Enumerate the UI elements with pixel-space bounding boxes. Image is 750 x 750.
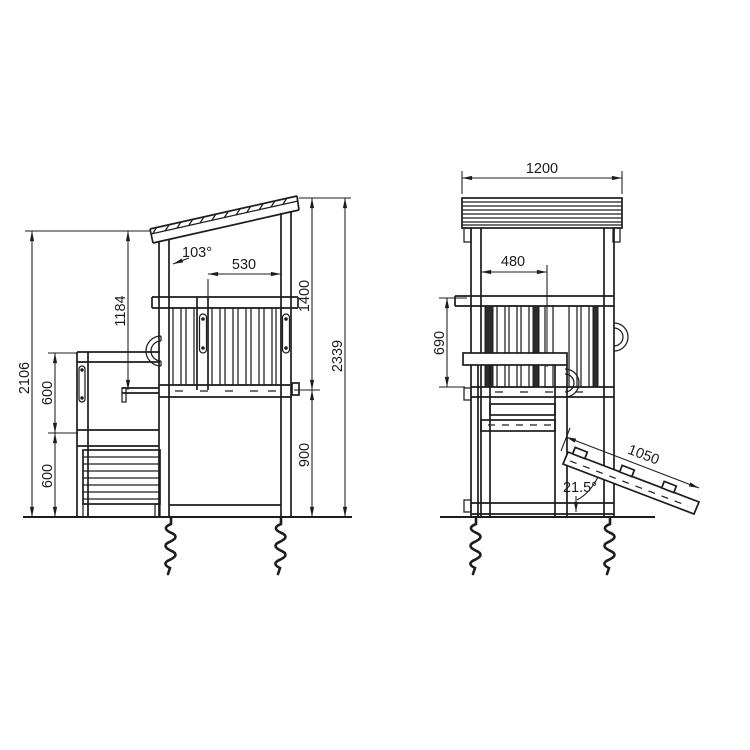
ladder-rung (490, 404, 555, 415)
ladder-top-rail (463, 353, 567, 365)
grab-handle-right (283, 314, 290, 353)
side-deck (122, 383, 299, 505)
dim-label-ramp-length: 1050 (626, 442, 662, 469)
ground-anchor (165, 517, 175, 574)
annex-grab-handle (79, 366, 85, 402)
dim-label-roof-to-deck-right: 1400 (297, 280, 313, 312)
dim-label-annex-upper: 600 (40, 381, 56, 405)
side-dimensions: 2106 600 600 1184 103° 530 1400 900 2339 (17, 198, 351, 517)
dim-label-roof-width: 1200 (526, 161, 558, 177)
dim-label-overall-height: 2339 (330, 340, 346, 372)
front-bottom-rail (471, 503, 614, 514)
side-railing-slats (173, 308, 281, 385)
steering-wheel-front (614, 323, 628, 351)
dim-label-deck-height: 900 (297, 443, 313, 467)
dim-label-ramp-angle: 21.5° (563, 480, 597, 496)
technical-drawing-page: 2106 600 600 1184 103° 530 1400 900 2339 (0, 0, 750, 750)
side-view: 2106 600 600 1184 103° 530 1400 900 2339 (17, 196, 352, 574)
front-view: 1200 480 690 1050 21.5° (432, 161, 699, 574)
front-top-rail (455, 296, 614, 306)
dim-label-railing-height: 690 (432, 331, 448, 355)
front-roof (462, 198, 622, 242)
playtower-dimension-drawing: 2106 600 600 1184 103° 530 1400 900 2339 (0, 0, 750, 750)
ground-anchor (275, 517, 285, 574)
front-ladder (463, 353, 567, 517)
dim-label-annex-lower: 600 (40, 464, 56, 488)
dim-label-entry-offset: 480 (501, 254, 525, 270)
roof-bracket-left (464, 228, 471, 242)
side-roof (150, 196, 299, 243)
side-railing (152, 297, 298, 390)
front-railing-slats (485, 306, 598, 387)
side-annex (77, 352, 160, 517)
ground-anchor (604, 517, 614, 574)
dim-label-roof-to-deck: 1184 (113, 295, 129, 326)
annex-slat-panel (83, 450, 160, 504)
grab-handle-left (200, 314, 207, 353)
dim-label-overall-height-left: 2106 (17, 362, 33, 394)
dim-label-deck-opening: 530 (232, 257, 256, 273)
ground-anchor (470, 517, 480, 574)
